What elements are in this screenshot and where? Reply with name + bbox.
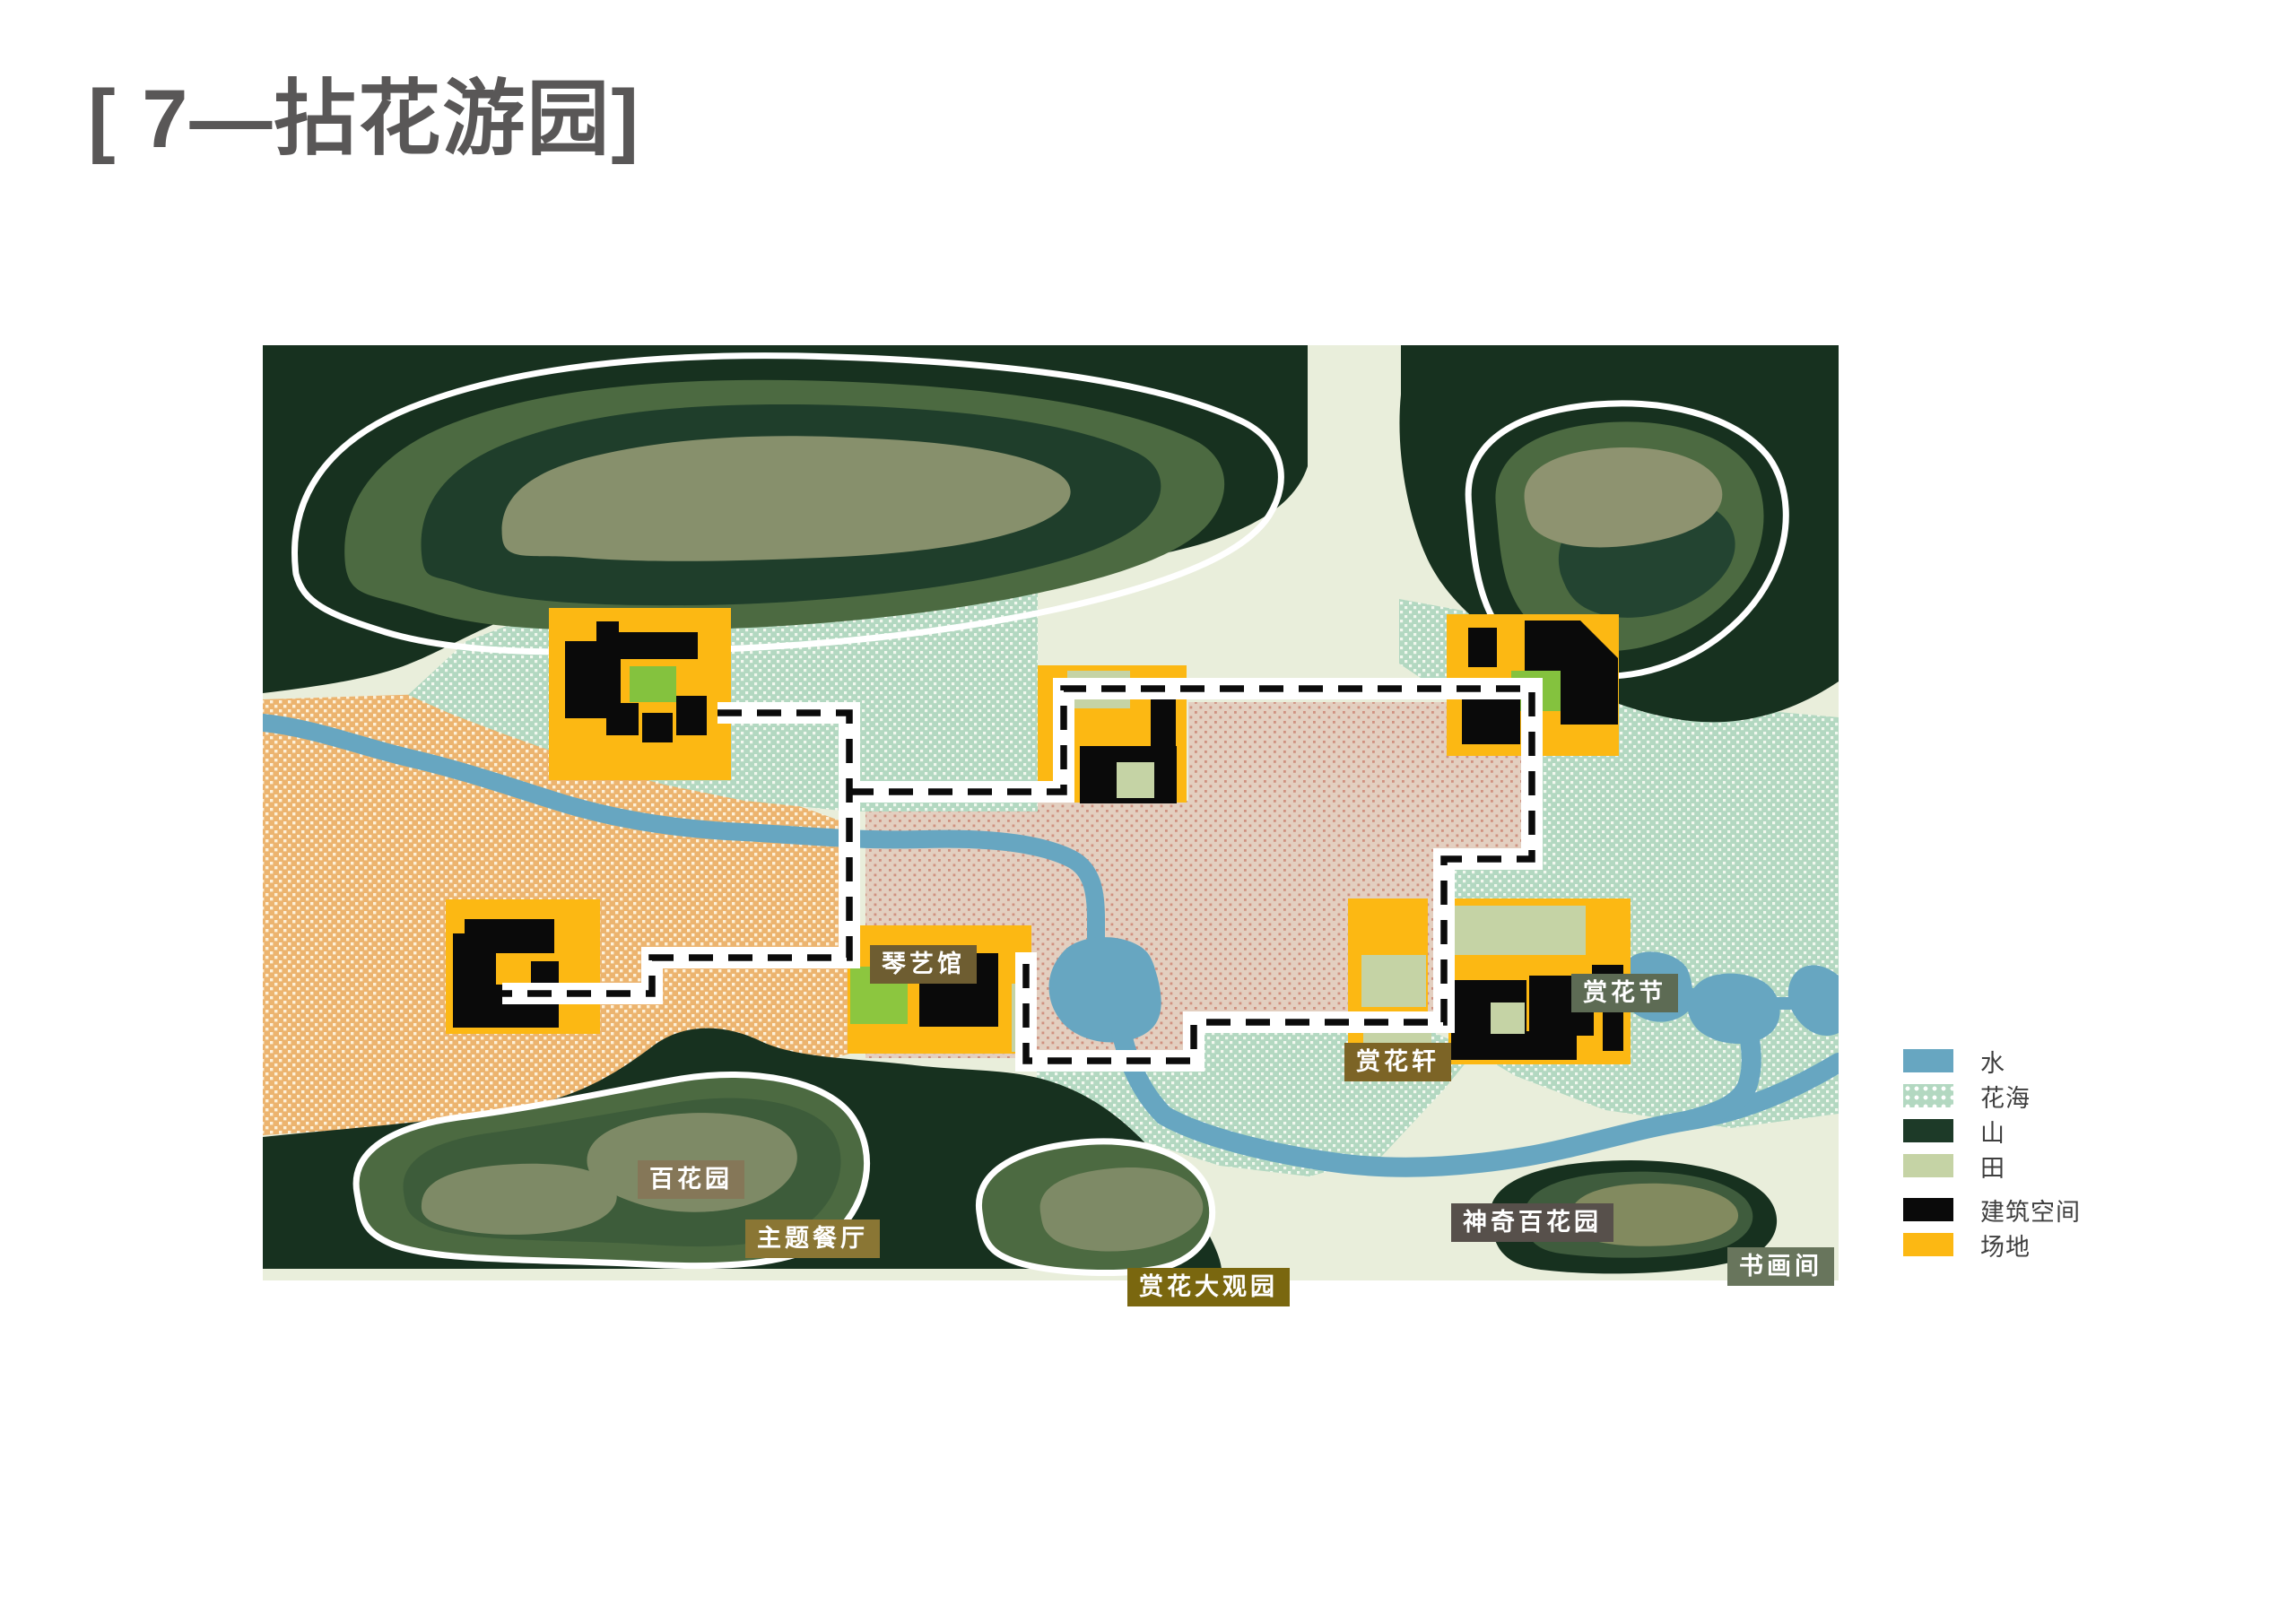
label-zhuticanting: 主题餐厅 <box>745 1219 880 1258</box>
legend-swatch-building <box>1903 1198 1953 1221</box>
label-shuhuajian: 书画间 <box>1727 1247 1834 1286</box>
legend-swatch-field <box>1903 1154 1953 1177</box>
label-baihuayuan: 百花园 <box>638 1160 744 1199</box>
field-courtyard-shuhuajian <box>1491 1002 1525 1034</box>
label-shanghuadaguanyuan: 赏花大观园 <box>1127 1268 1290 1306</box>
label-shanghuajie: 赏花节 <box>1571 974 1678 1012</box>
legend-swatch-site <box>1903 1233 1953 1256</box>
legend-row-water: 水 <box>1903 1049 2081 1072</box>
page: { "title": "[ 7—拈花游园]", "map": { "labels… <box>0 0 2296 1623</box>
label-shenqibaihuayuan: 神奇百花园 <box>1451 1203 1613 1242</box>
legend-label-building: 建筑空间 <box>1980 1193 2081 1228</box>
legend-label-flower-sea: 花海 <box>1980 1079 2031 1114</box>
field-courtyard-shanghuaxuan <box>1117 762 1154 798</box>
legend-row-building: 建筑空间 <box>1903 1198 2081 1221</box>
legend-row-flower-sea: 花海 <box>1903 1084 2081 1107</box>
page-title: [ 7—拈花游园] <box>88 52 640 171</box>
legend-row-mountain: 山 <box>1903 1119 2081 1142</box>
site-plan-map: 琴艺馆 赏花节 赏花轩 百花园 主题餐厅 神奇百花园 赏花大观园 书画间 <box>263 345 1839 1280</box>
legend: 水 花海 山 田 建筑空间 场地 <box>1903 1049 2081 1256</box>
legend-row-site: 场地 <box>1903 1233 2081 1256</box>
legend-label-site: 场地 <box>1980 1228 2031 1263</box>
site-plan-canvas <box>263 345 1839 1280</box>
legend-swatch-water <box>1903 1049 1953 1072</box>
legend-label-field: 田 <box>1980 1149 2005 1184</box>
label-shanghuaxuan: 赏花轩 <box>1344 1043 1451 1081</box>
legend-label-water: 水 <box>1980 1044 2005 1079</box>
legend-swatch-mountain <box>1903 1119 1953 1142</box>
label-qinyiguan: 琴艺馆 <box>870 945 977 984</box>
legend-swatch-flower-sea <box>1903 1084 1953 1107</box>
legend-row-field: 田 <box>1903 1154 2081 1177</box>
legend-label-mountain: 山 <box>1980 1114 2005 1149</box>
